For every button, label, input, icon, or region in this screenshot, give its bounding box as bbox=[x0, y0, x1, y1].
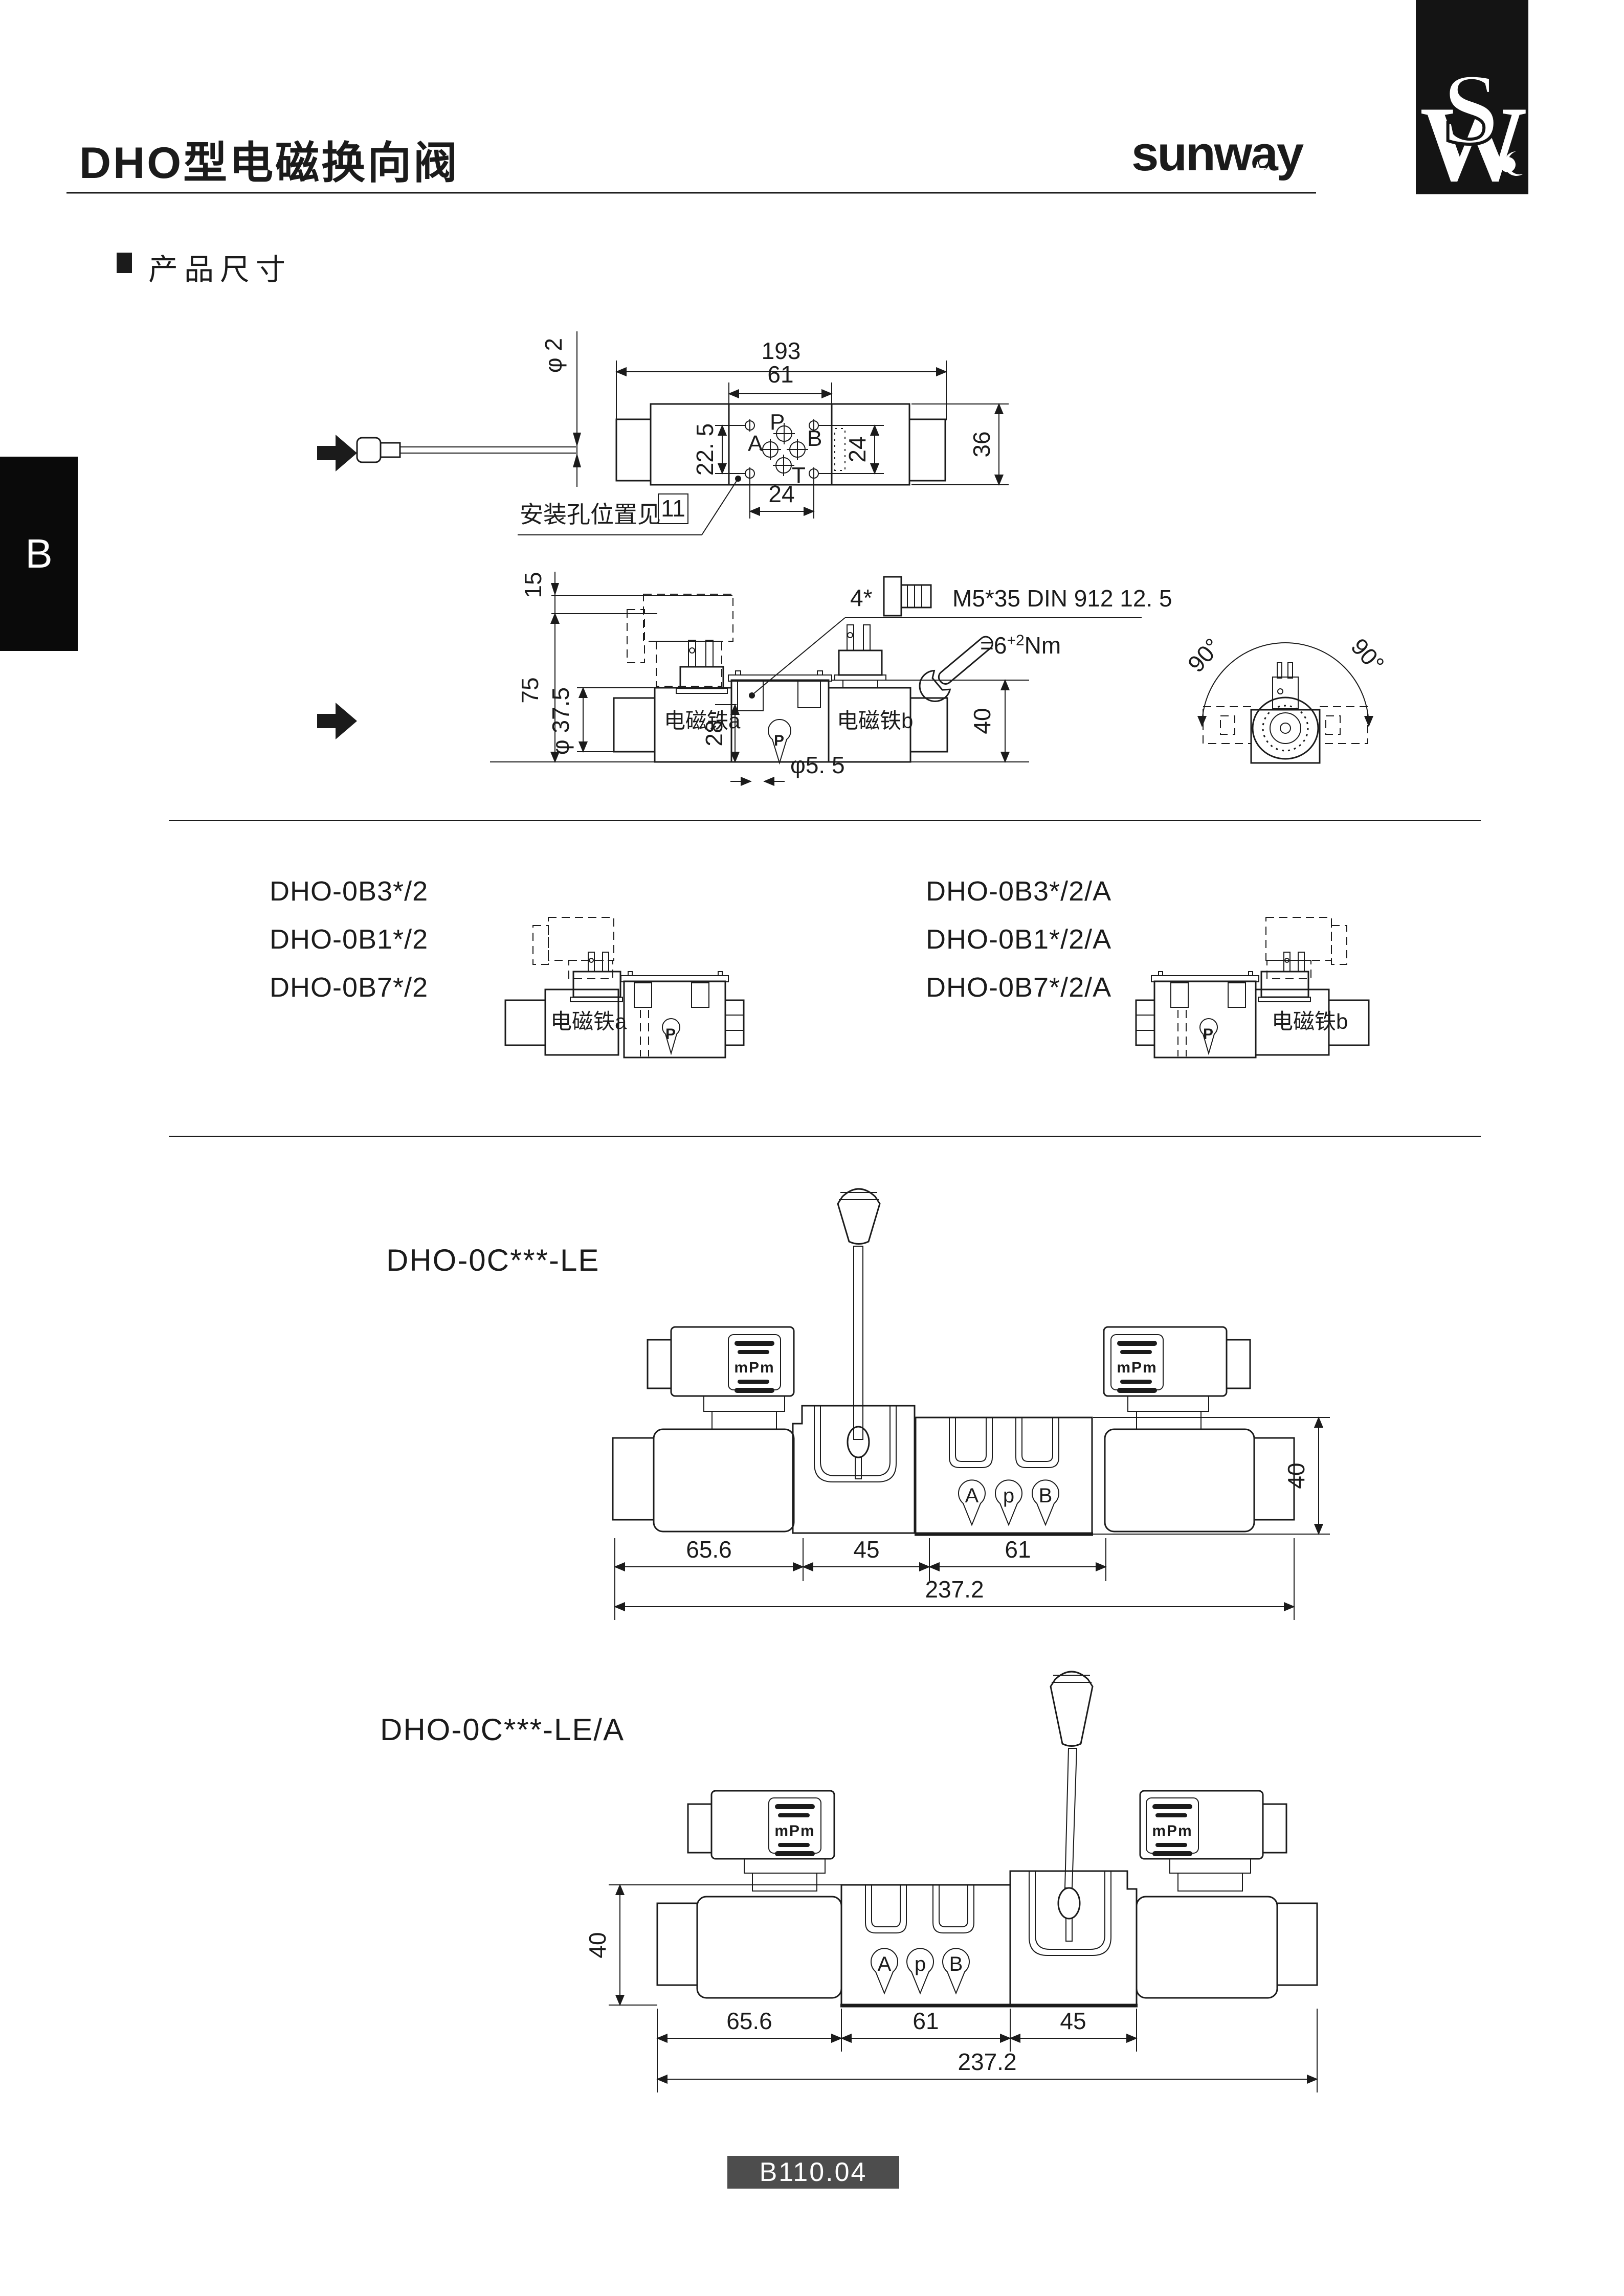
dim-22-5: 22. 5 bbox=[692, 423, 718, 476]
connector-a: mPm bbox=[648, 1327, 794, 1429]
right-coil-cap bbox=[909, 419, 945, 481]
note-text: 安装孔位置见 bbox=[520, 501, 661, 528]
dim-61: 61 bbox=[767, 361, 793, 388]
top-view-drawing: φ 2 P A B T 193 61 22. 5 24 36 2 bbox=[317, 331, 1009, 535]
dim-total: 237.2 bbox=[925, 1576, 984, 1603]
dim-total: 237.2 bbox=[958, 2049, 1016, 2075]
connector-mark: mPm bbox=[1117, 1359, 1157, 1376]
angle-right: 90° bbox=[1346, 633, 1389, 677]
valve-center-body bbox=[731, 680, 829, 762]
port-marks: A p B bbox=[871, 1948, 969, 1993]
port-p-label: P bbox=[774, 732, 785, 749]
connector-b bbox=[835, 625, 886, 688]
dim-cable-dia: φ 2 bbox=[540, 338, 567, 373]
torque-note: =6+2Nm bbox=[980, 632, 1061, 659]
solenoid-b-label: 电磁铁b bbox=[837, 709, 913, 733]
dim-75: 75 bbox=[517, 677, 543, 703]
screw-spec: M5*35 DIN 912 12. 5 bbox=[952, 585, 1172, 612]
port-section bbox=[916, 1417, 1092, 1534]
dim-40: 40 bbox=[1283, 1462, 1309, 1489]
coil-cap-a bbox=[657, 1903, 697, 1985]
connector-a bbox=[676, 640, 727, 693]
coil-cap-b bbox=[1277, 1903, 1317, 1985]
port-slot bbox=[798, 681, 820, 708]
dim-hole-dia: φ5. 5 bbox=[790, 752, 845, 778]
dim-seg2: 61 bbox=[913, 2008, 939, 2034]
connector-mark: mPm bbox=[774, 1822, 815, 1839]
solenoid-b-tube bbox=[1105, 1429, 1254, 1532]
connector-mark: mPm bbox=[734, 1359, 774, 1376]
angle-left: 90° bbox=[1183, 633, 1226, 677]
screw-callout: 4* M5*35 DIN 912 12. 5 bbox=[754, 577, 1172, 693]
dim-24-bottom: 24 bbox=[768, 481, 794, 507]
rotation-view: 90° 90° bbox=[1183, 621, 1390, 795]
port-p-label: P bbox=[665, 1026, 677, 1043]
solenoid-b-tube bbox=[1137, 1897, 1277, 1998]
front-view-drawing: P 电磁铁a 电磁铁b 15 75 φ 37.5 28 φ5. 5 40 bbox=[317, 572, 1389, 796]
solenoid-a-tube bbox=[654, 1429, 794, 1532]
dim-seg1: 65.6 bbox=[726, 2008, 772, 2034]
dim-15: 15 bbox=[520, 572, 546, 598]
dim-seg3: 45 bbox=[1060, 2008, 1086, 2034]
connector-b: mPm bbox=[1104, 1327, 1250, 1429]
lever-valve-drawing: mPm A p B mPm 40 bbox=[598, 1189, 1330, 1620]
technical-drawings: φ 2 P A B T 193 61 22. 5 24 36 2 bbox=[0, 0, 1624, 2296]
dim-seg1: 65.6 bbox=[686, 1536, 732, 1563]
note-ref: 11 bbox=[661, 495, 685, 522]
connector-mark: mPm bbox=[1152, 1822, 1192, 1839]
coil-cap-a bbox=[613, 1438, 654, 1520]
connector-b: mPm bbox=[1140, 1791, 1286, 1891]
screw-icon bbox=[870, 577, 944, 616]
connector-alt-dashed bbox=[533, 917, 614, 979]
dim-coil-dia: φ 37.5 bbox=[547, 687, 574, 755]
connector bbox=[570, 952, 622, 1002]
port-p-label: p bbox=[1003, 1484, 1014, 1507]
view-arrow-icon bbox=[317, 435, 357, 471]
lever-shaft bbox=[1065, 1748, 1077, 1888]
dim-seg2: 45 bbox=[853, 1536, 879, 1563]
port-section bbox=[841, 1885, 1010, 2006]
end-plug bbox=[725, 1000, 744, 1045]
port-p-label: p bbox=[915, 1953, 926, 1975]
solenoid-label: 电磁铁b bbox=[1272, 1009, 1348, 1033]
dim-40: 40 bbox=[969, 708, 995, 734]
port-p-label: P bbox=[1203, 1026, 1214, 1043]
port-marks: A p B bbox=[959, 1480, 1059, 1525]
port-label-a: A bbox=[748, 431, 763, 456]
left-coil-cap bbox=[616, 419, 651, 481]
lever-valve-a-drawing: mPm A p B mPm 40 bbox=[584, 1672, 1335, 2092]
dim-28: 28 bbox=[701, 720, 727, 746]
solenoid-label: 电磁铁a bbox=[550, 1009, 627, 1033]
end-plug bbox=[1136, 1000, 1154, 1045]
port-a-label: A bbox=[878, 1953, 892, 1975]
port-a-label: A bbox=[965, 1484, 979, 1507]
lever-shaft bbox=[854, 1246, 863, 1439]
dim-36: 36 bbox=[968, 431, 995, 457]
port-b-label: B bbox=[1039, 1484, 1053, 1507]
screw-qty: 4* bbox=[850, 584, 873, 611]
coil-cap bbox=[505, 1000, 545, 1045]
coil-cap-a bbox=[614, 698, 655, 752]
dim-24-vertical: 24 bbox=[844, 436, 871, 462]
port-label-p: P bbox=[770, 410, 785, 435]
dim-40: 40 bbox=[584, 1932, 611, 1958]
port-b-label: B bbox=[949, 1953, 963, 1975]
port-label-b: B bbox=[807, 426, 822, 451]
variant-right-drawing: P 电磁铁b bbox=[1124, 917, 1396, 1057]
variant-left-drawing: P 电磁铁a bbox=[485, 917, 756, 1057]
cable-stem bbox=[381, 443, 400, 457]
connector-alt-dashed bbox=[1266, 917, 1347, 979]
coil-cap-b bbox=[910, 698, 947, 752]
connector-a: mPm bbox=[688, 1791, 834, 1891]
lever-knob bbox=[838, 1189, 880, 1244]
plug bbox=[1273, 677, 1298, 709]
dim-seg3: 61 bbox=[1005, 1536, 1031, 1563]
dim-193: 193 bbox=[762, 337, 801, 364]
solenoid-a-tube bbox=[697, 1897, 841, 1998]
view-arrow-icon bbox=[317, 703, 357, 739]
cable-plug bbox=[357, 438, 381, 462]
